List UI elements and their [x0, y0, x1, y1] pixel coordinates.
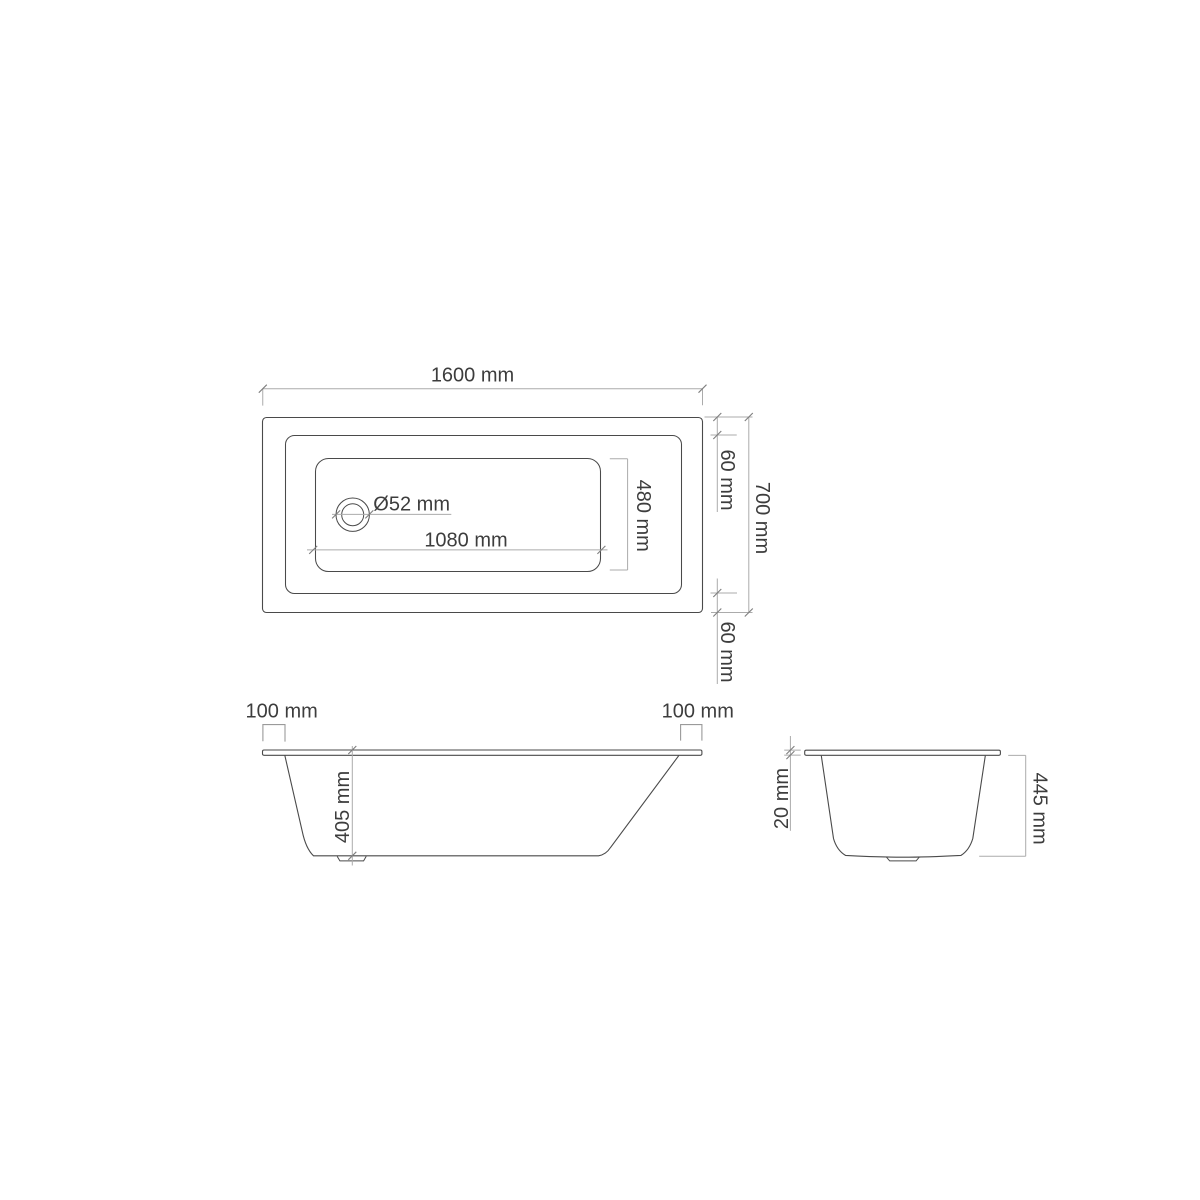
svg-text:700 mm: 700 mm — [751, 482, 773, 554]
svg-text:100 mm: 100 mm — [662, 701, 734, 723]
svg-text:Ø52 mm: Ø52 mm — [373, 494, 450, 516]
svg-text:445 mm: 445 mm — [1028, 772, 1050, 844]
svg-text:20 mm: 20 mm — [771, 768, 793, 829]
svg-text:480 mm: 480 mm — [632, 480, 654, 552]
svg-text:1600 mm: 1600 mm — [431, 365, 514, 387]
svg-text:60 mm: 60 mm — [716, 621, 738, 682]
svg-text:60 mm: 60 mm — [716, 449, 738, 510]
svg-text:1080 mm: 1080 mm — [424, 530, 507, 552]
svg-text:405 mm: 405 mm — [332, 771, 354, 843]
svg-text:100 mm: 100 mm — [246, 701, 318, 723]
